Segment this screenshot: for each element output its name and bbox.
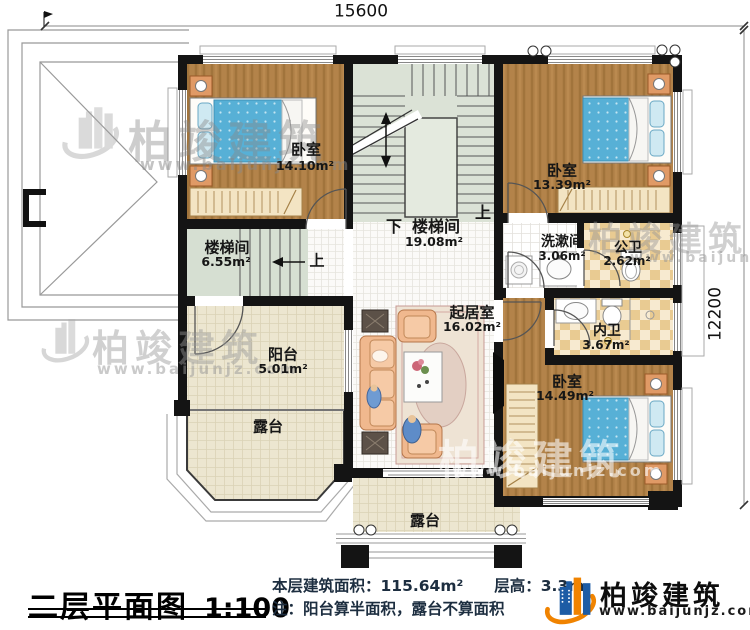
stair-small-up-label: 上 xyxy=(309,254,324,269)
floor-plan-page: 柏竣建筑 www.baijunjz.com 柏竣建筑 www.baijunjz.… xyxy=(0,0,750,630)
balcony-post xyxy=(174,400,190,416)
exterior-ledge xyxy=(682,226,704,356)
floor-note: 注：阳台算半面积，露台不算面积 xyxy=(272,597,505,619)
balcony-floor xyxy=(187,306,344,410)
bedroom1-name: 卧室 xyxy=(291,143,321,158)
pillow xyxy=(650,401,664,427)
balcony-area: 5.01m² xyxy=(258,363,307,376)
corner-post xyxy=(648,491,678,510)
dimension-right: 12200 xyxy=(708,287,725,341)
light-pull xyxy=(624,231,631,238)
private-bath-area: 3.67m² xyxy=(582,339,629,351)
drawing-title-block: 二层平面图 1:100 xyxy=(28,582,290,626)
stair-hall-down-label: 下 xyxy=(386,219,402,235)
stair-hall-name: 楼梯间 xyxy=(412,219,460,235)
chimney xyxy=(26,192,46,224)
corner-post xyxy=(334,464,352,482)
living-area: 16.02m² xyxy=(443,321,501,334)
terrace-column xyxy=(341,542,369,568)
brand-logo-icon xyxy=(540,572,598,626)
terrace-left-name: 露台 xyxy=(253,420,283,435)
terrace-column xyxy=(494,542,522,568)
public-bath-area: 2.62m² xyxy=(603,255,650,267)
public-bath-name: 公卫 xyxy=(614,241,642,255)
brand-url: www.baijunjz.com xyxy=(599,604,750,619)
private-bath-name: 内卫 xyxy=(593,324,621,338)
pillow xyxy=(650,101,664,127)
floor-plan-drawing xyxy=(0,0,750,630)
floor-stats: 本层建筑面积：115.64m² 层高：3.3m xyxy=(272,574,584,596)
washroom-name: 洗漱间 xyxy=(541,235,583,249)
title-underline xyxy=(28,608,266,618)
drawing-title: 二层平面图 xyxy=(28,582,188,626)
pillow xyxy=(650,430,664,456)
stair-landing xyxy=(405,118,457,217)
pillow xyxy=(198,103,212,129)
bedroom2-area: 13.39m² xyxy=(533,179,591,192)
dimension-top: 15600 xyxy=(334,4,388,21)
coffee-table xyxy=(404,352,442,402)
roof-plan xyxy=(8,30,189,320)
stair-hall-up-label: 上 xyxy=(475,205,491,221)
terrace-bottom-name: 露台 xyxy=(410,514,440,529)
toilet-tank xyxy=(602,299,622,306)
pillow xyxy=(650,130,664,156)
pillow xyxy=(198,132,212,158)
stair-small-area: 6.55m² xyxy=(201,256,250,269)
tv-wall-unit xyxy=(493,352,504,414)
stair-hall-area: 19.08m² xyxy=(405,236,463,249)
exterior-ledge xyxy=(682,388,692,484)
washroom-area: 3.06m² xyxy=(538,250,585,262)
bedroom3-area: 14.49m² xyxy=(536,390,594,403)
bedroom1-area: 14.10m² xyxy=(276,160,334,173)
roof-hip-lines xyxy=(40,62,157,295)
